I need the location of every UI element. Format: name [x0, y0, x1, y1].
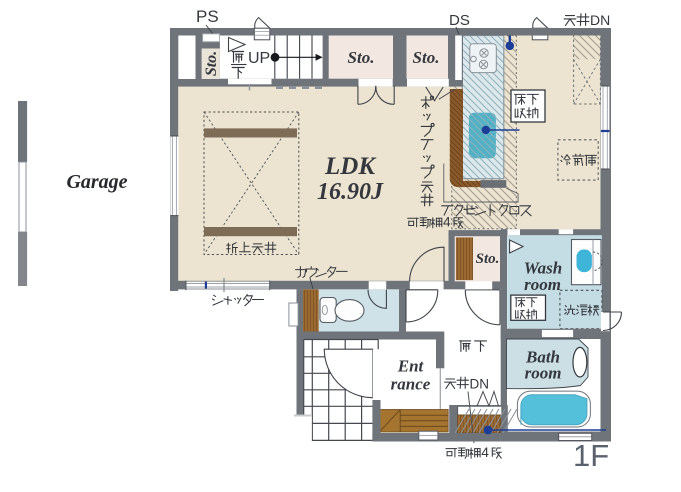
svg-text:4: 4 — [443, 215, 451, 230]
svg-text:DN: DN — [590, 12, 610, 28]
svg-text:Sto.: Sto. — [203, 51, 220, 76]
svg-text:UP: UP — [248, 50, 270, 67]
svg-text:1F: 1F — [573, 438, 609, 473]
svg-text:Sto.: Sto. — [413, 48, 440, 67]
svg-text:DN: DN — [470, 377, 490, 392]
svg-text:Sto.: Sto. — [348, 48, 375, 67]
svg-text:DS: DS — [449, 12, 470, 29]
svg-text:Ent: Ent — [397, 357, 425, 376]
svg-text:16.90J: 16.90J — [317, 179, 384, 205]
svg-text:room: room — [525, 364, 562, 383]
svg-text:Garage: Garage — [66, 171, 127, 193]
svg-text:Sto.: Sto. — [476, 251, 500, 267]
svg-text:room: room — [524, 275, 561, 294]
svg-text:PS: PS — [196, 7, 219, 26]
svg-text:rance: rance — [391, 375, 431, 394]
svg-text:4: 4 — [481, 445, 489, 460]
svg-text:LDK: LDK — [324, 153, 377, 180]
